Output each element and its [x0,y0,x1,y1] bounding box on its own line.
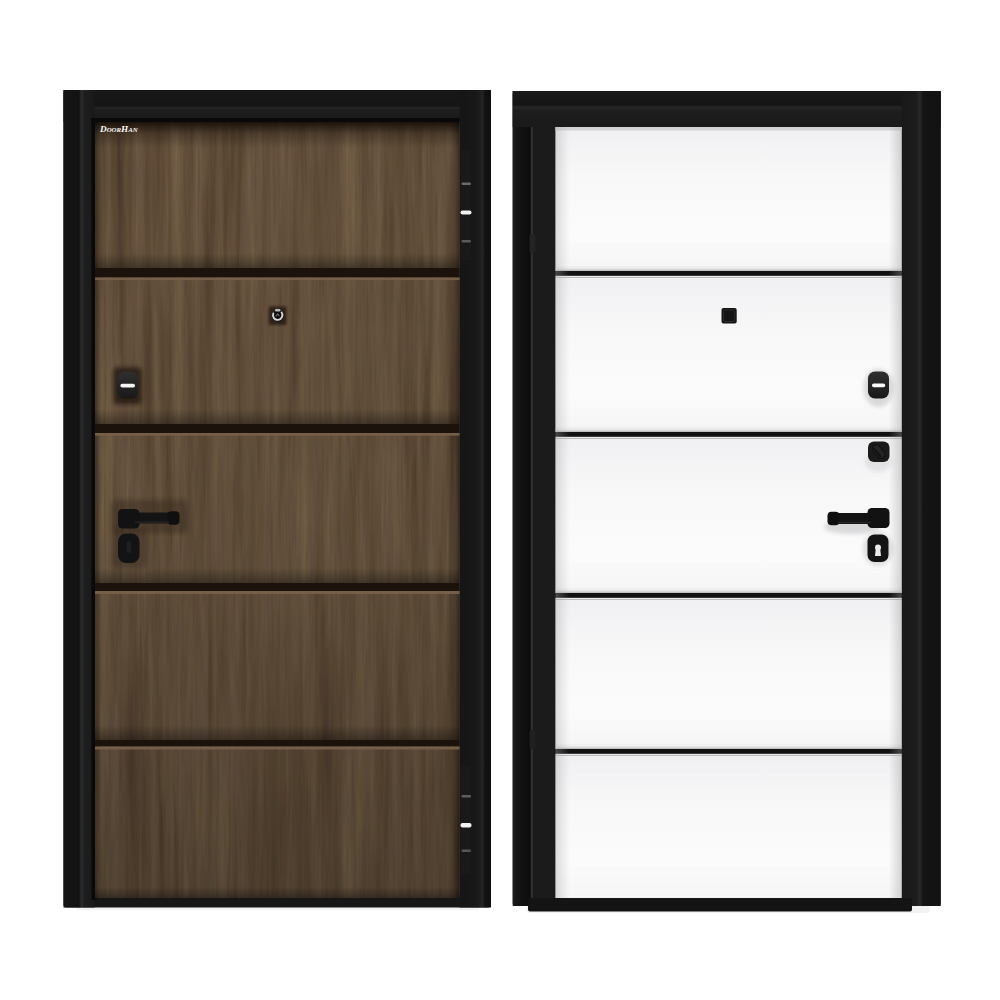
svg-text:DOORHAN: DOORHAN [99,124,139,134]
